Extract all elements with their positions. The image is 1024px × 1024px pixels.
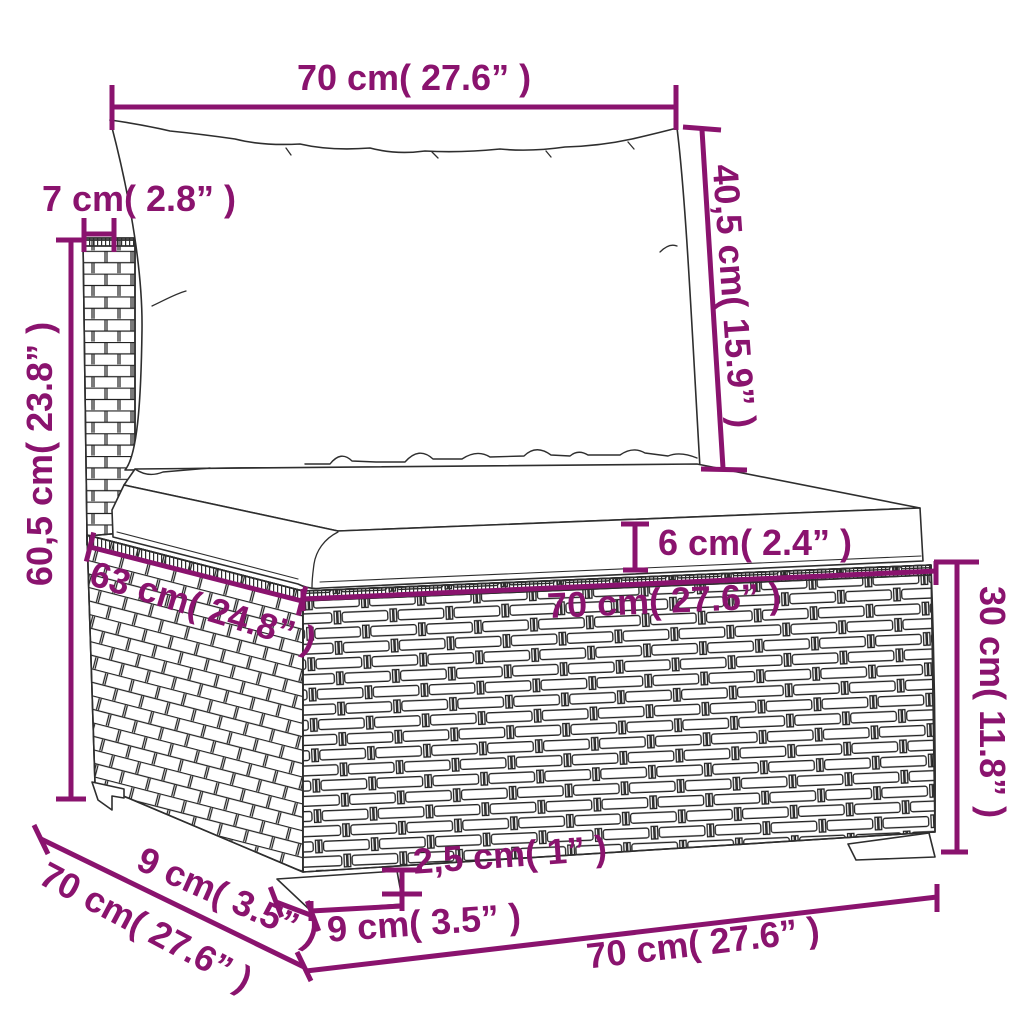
- svg-text:70 cm( 27.6” ): 70 cm( 27.6” ): [297, 57, 531, 98]
- svg-text:30 cm( 11.8” ): 30 cm( 11.8” ): [972, 586, 1013, 818]
- svg-text:6 cm( 2.4” ): 6 cm( 2.4” ): [658, 522, 852, 563]
- svg-text:7 cm( 2.8” ): 7 cm( 2.8” ): [42, 178, 236, 219]
- svg-text:60,5 cm( 23.8” ): 60,5 cm( 23.8” ): [19, 322, 60, 586]
